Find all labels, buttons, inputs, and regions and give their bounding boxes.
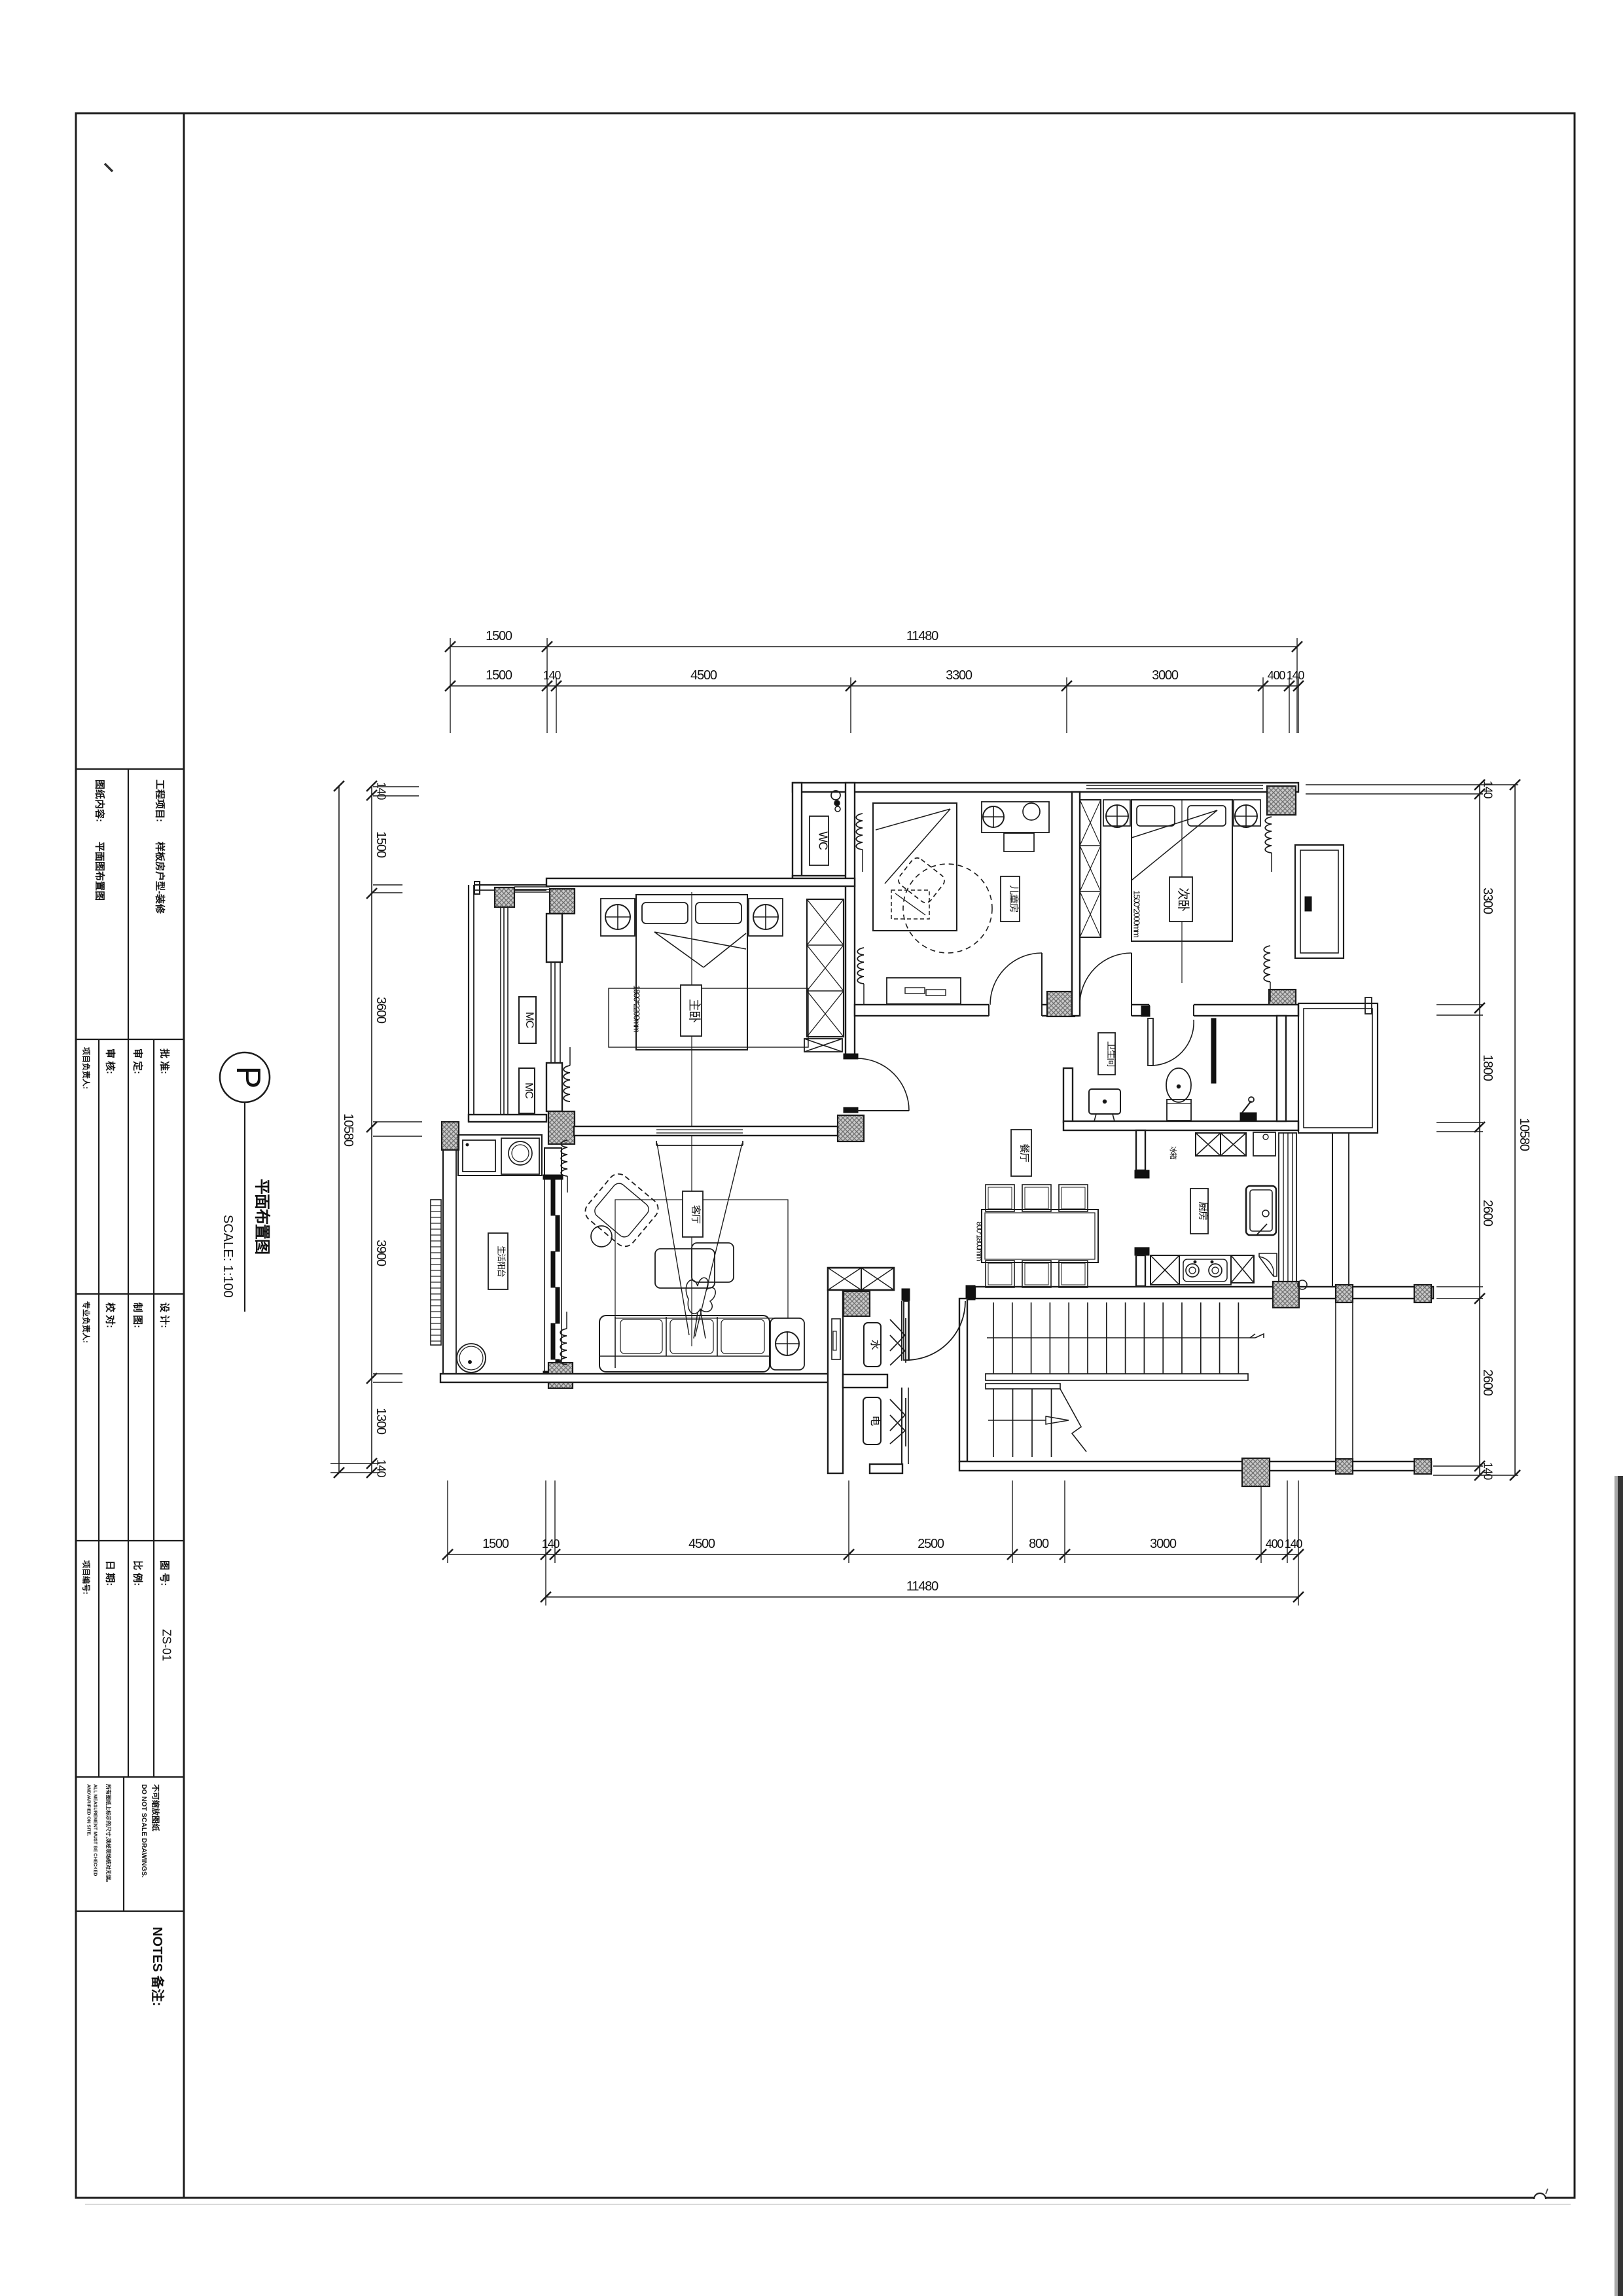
svg-text:SCALE: 1:100: SCALE: 1:100 xyxy=(221,1215,235,1298)
svg-text:生活阳台: 生活阳台 xyxy=(496,1246,506,1277)
svg-text:平面布置图: 平面布置图 xyxy=(253,1179,271,1254)
svg-text:800*1800mm: 800*1800mm xyxy=(975,1221,984,1261)
svg-text:4500: 4500 xyxy=(690,668,717,683)
svg-text:140: 140 xyxy=(543,669,562,682)
svg-text:图纸内容:: 图纸内容: xyxy=(94,780,106,822)
svg-text:日 期:: 日 期: xyxy=(105,1560,116,1586)
svg-text:140: 140 xyxy=(1287,669,1305,682)
svg-text:主卧: 主卧 xyxy=(687,999,702,1023)
svg-text:MC: MC xyxy=(524,1012,536,1028)
svg-text:140: 140 xyxy=(375,1460,388,1478)
svg-text:3600: 3600 xyxy=(374,997,388,1024)
svg-text:10580: 10580 xyxy=(1517,1118,1531,1151)
svg-text:水: 水 xyxy=(869,1340,881,1350)
svg-text:140: 140 xyxy=(1482,1462,1495,1480)
svg-text:MC: MC xyxy=(523,1083,535,1099)
svg-text:项目编号:: 项目编号: xyxy=(82,1560,92,1594)
svg-text:厨房: 厨房 xyxy=(1198,1202,1209,1220)
svg-text:审 定:: 审 定: xyxy=(132,1049,144,1074)
svg-text:餐厅: 餐厅 xyxy=(1019,1143,1030,1162)
svg-text:3000: 3000 xyxy=(1150,1537,1177,1551)
svg-text:3300: 3300 xyxy=(946,668,972,683)
svg-text:P: P xyxy=(229,1066,267,1089)
svg-text:1300: 1300 xyxy=(374,1408,388,1435)
svg-text:3000: 3000 xyxy=(1152,668,1179,683)
svg-text:1500: 1500 xyxy=(482,1537,509,1551)
svg-text:设 计:: 设 计: xyxy=(159,1302,171,1328)
svg-text:4500: 4500 xyxy=(688,1537,715,1551)
svg-text:WC: WC xyxy=(817,831,830,850)
svg-text:2600: 2600 xyxy=(1480,1369,1495,1396)
svg-text:NOTES 备注:: NOTES 备注: xyxy=(150,1927,166,2006)
svg-text:140: 140 xyxy=(375,782,388,800)
svg-text:140: 140 xyxy=(1482,781,1495,799)
svg-text:11480: 11480 xyxy=(906,1579,938,1594)
svg-text:1800*2200mm: 1800*2200mm xyxy=(632,985,641,1032)
svg-text:3300: 3300 xyxy=(1480,888,1495,914)
svg-text:比 例:: 比 例: xyxy=(132,1560,144,1586)
svg-text:校 对:: 校 对: xyxy=(105,1302,116,1328)
svg-text:1500: 1500 xyxy=(486,668,512,683)
svg-text:1500: 1500 xyxy=(486,629,512,643)
svg-text:1500*2000mm: 1500*2000mm xyxy=(1132,890,1141,937)
svg-text:2500: 2500 xyxy=(918,1537,944,1551)
svg-text:工程项目:: 工程项目: xyxy=(154,780,166,822)
svg-text:制 图:: 制 图: xyxy=(132,1302,144,1328)
svg-text:3900: 3900 xyxy=(374,1240,388,1266)
svg-text:儿童房: 儿童房 xyxy=(1008,885,1020,912)
svg-text:项目负责人:: 项目负责人: xyxy=(82,1047,92,1089)
svg-text:140: 140 xyxy=(1285,1537,1303,1551)
svg-text:400: 400 xyxy=(1268,669,1286,682)
svg-text:所有图纸上标示的尺寸,须经现场核对无误。: 所有图纸上标示的尺寸,须经现场核对无误。 xyxy=(105,1784,112,1885)
svg-text:平面图布置图: 平面图布置图 xyxy=(94,842,106,901)
svg-text:ALL MEASUREMENT MUST BE CHECKE: ALL MEASUREMENT MUST BE CHECKED xyxy=(92,1784,97,1876)
svg-text:10580: 10580 xyxy=(341,1113,355,1147)
svg-text:800: 800 xyxy=(1029,1537,1049,1551)
svg-text:不可缩放图纸: 不可缩放图纸 xyxy=(151,1784,161,1831)
svg-text:ZS-01: ZS-01 xyxy=(160,1629,173,1661)
svg-text:图 号:: 图 号: xyxy=(159,1560,170,1586)
svg-text:1800: 1800 xyxy=(1480,1054,1495,1081)
svg-text:客厅: 客厅 xyxy=(690,1205,702,1224)
svg-text:冰箱: 冰箱 xyxy=(1169,1146,1178,1160)
svg-text:批 准:: 批 准: xyxy=(159,1049,171,1074)
svg-text:400: 400 xyxy=(1266,1537,1284,1551)
svg-text:2600: 2600 xyxy=(1480,1200,1495,1227)
svg-text:电: 电 xyxy=(869,1416,881,1426)
svg-text:专业负责人:: 专业负责人: xyxy=(82,1301,92,1343)
svg-text:卫生间: 卫生间 xyxy=(1106,1041,1116,1067)
svg-text:样板房户型-装修: 样板房户型-装修 xyxy=(154,842,166,914)
svg-text:次卧: 次卧 xyxy=(1176,888,1190,912)
svg-text:11480: 11480 xyxy=(906,629,938,643)
svg-text:审 核:: 审 核: xyxy=(105,1049,116,1074)
svg-text:140: 140 xyxy=(542,1537,560,1551)
svg-text:ANDVARIFIED ON SITE.: ANDVARIFIED ON SITE. xyxy=(86,1784,90,1836)
svg-text:DO NOT SCALE DRAWINGS.: DO NOT SCALE DRAWINGS. xyxy=(140,1784,148,1878)
svg-text:1500: 1500 xyxy=(374,831,388,858)
